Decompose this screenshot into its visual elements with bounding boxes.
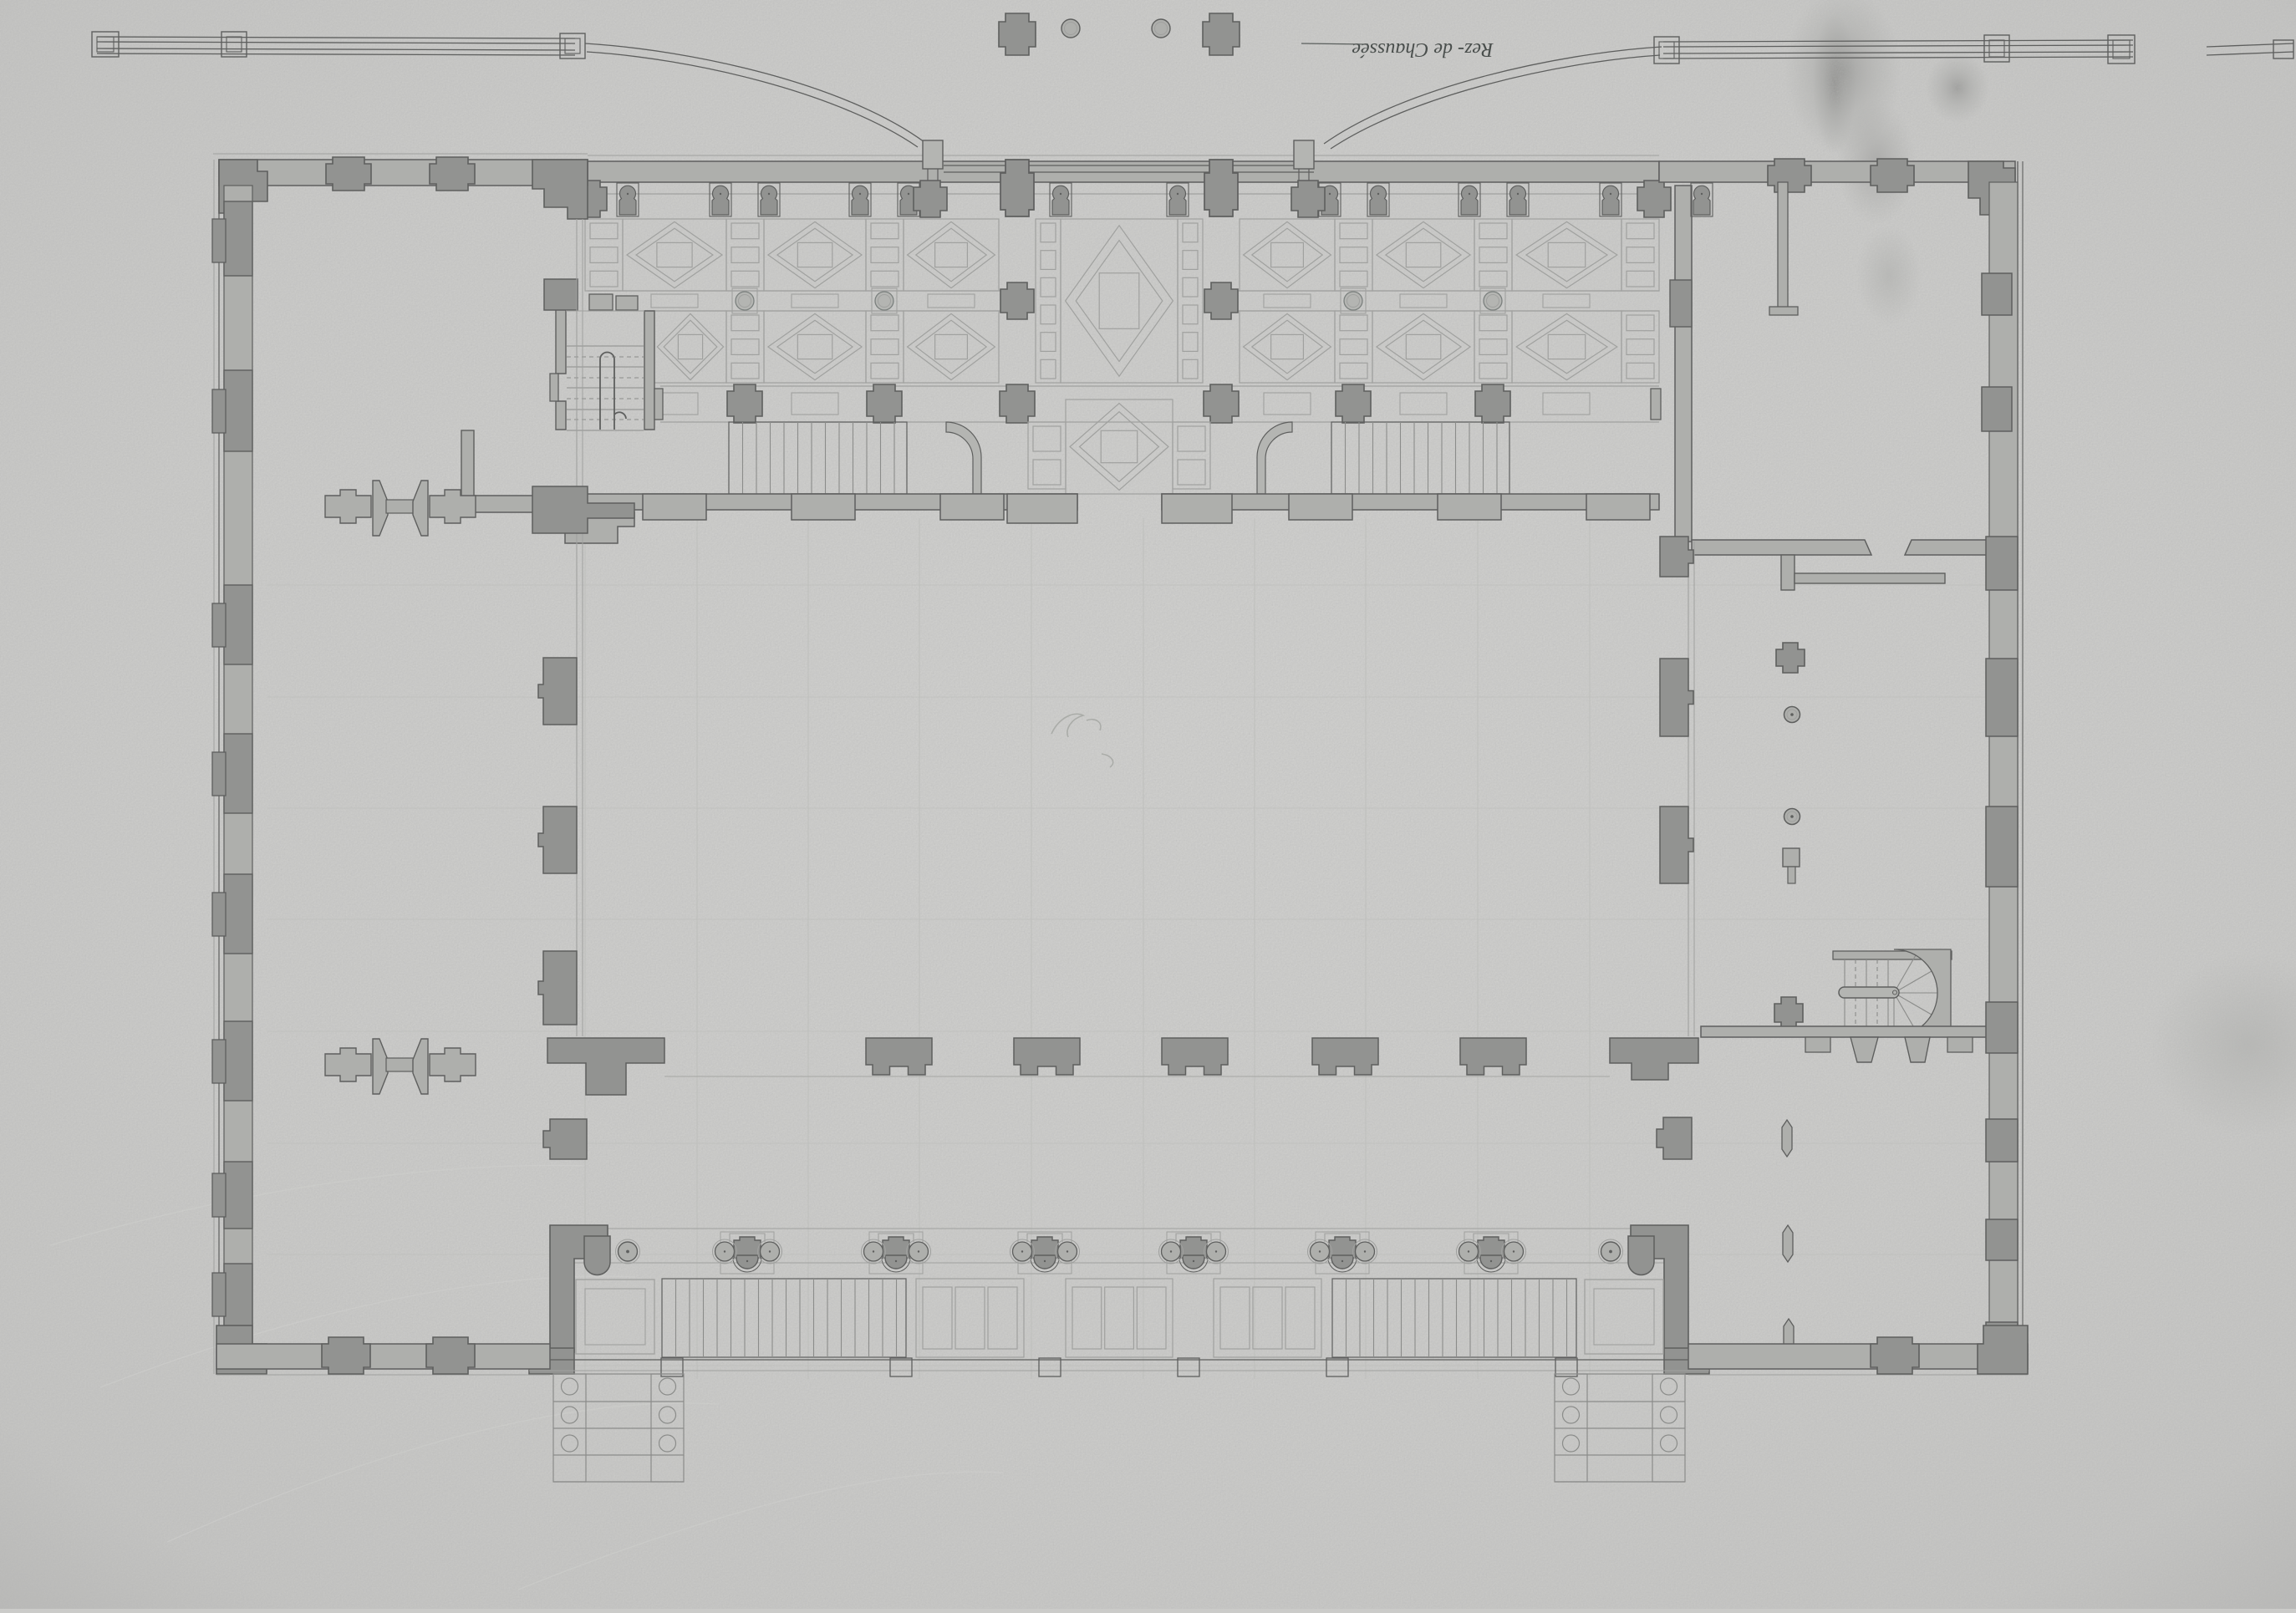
svg-text:Rez- de Chaussée: Rez- de Chaussée <box>1352 38 1494 60</box>
